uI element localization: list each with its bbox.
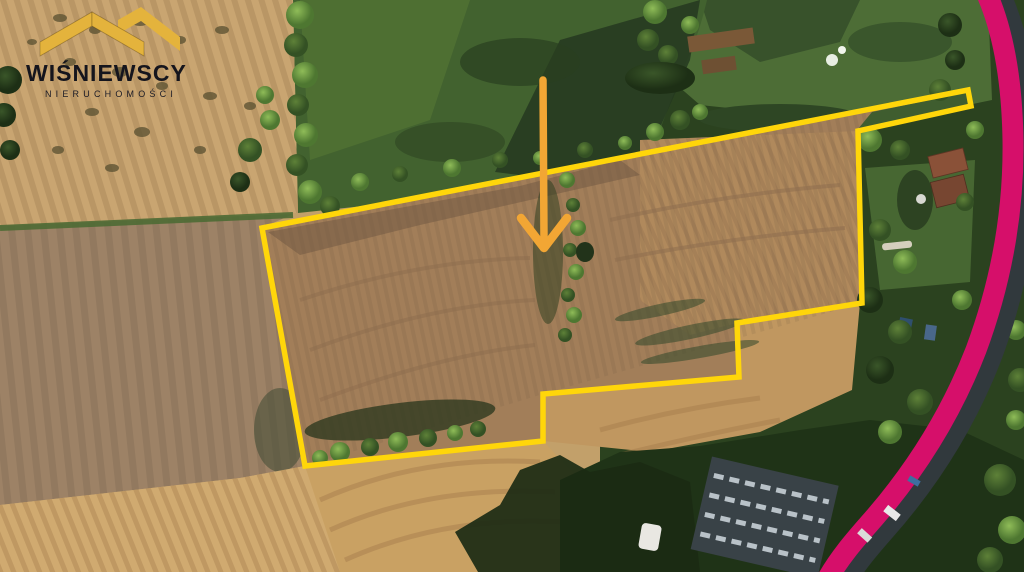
parked-car [924, 324, 937, 340]
arrow-shaft [543, 80, 544, 238]
satellite-imagery [0, 0, 1024, 572]
listing-photo: WIŚNIEWSCY NIERUCHOMOŚCI [0, 0, 1024, 572]
